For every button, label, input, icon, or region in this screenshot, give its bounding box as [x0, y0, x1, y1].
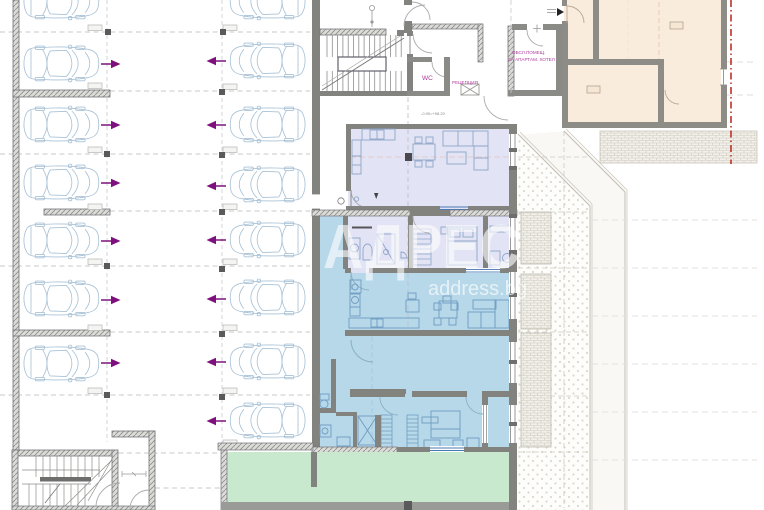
svg-text:РЕЦЕПЦИЯ: РЕЦЕПЦИЯ: [452, 80, 478, 85]
svg-text:address.bg: address.bg: [428, 278, 527, 300]
svg-text:ОБСЛ.ПОМЕЩ.: ОБСЛ.ПОМЕЩ.: [512, 50, 545, 55]
svg-text:ЗА АПАРТАМ. ХОТЕЛ: ЗА АПАРТАМ. ХОТЕЛ: [508, 57, 555, 62]
svg-text:АДРЕС: АДРЕС: [323, 213, 520, 282]
svg-text:WC: WC: [422, 75, 433, 82]
svg-text:-0.90=+98.20: -0.90=+98.20: [421, 111, 446, 116]
